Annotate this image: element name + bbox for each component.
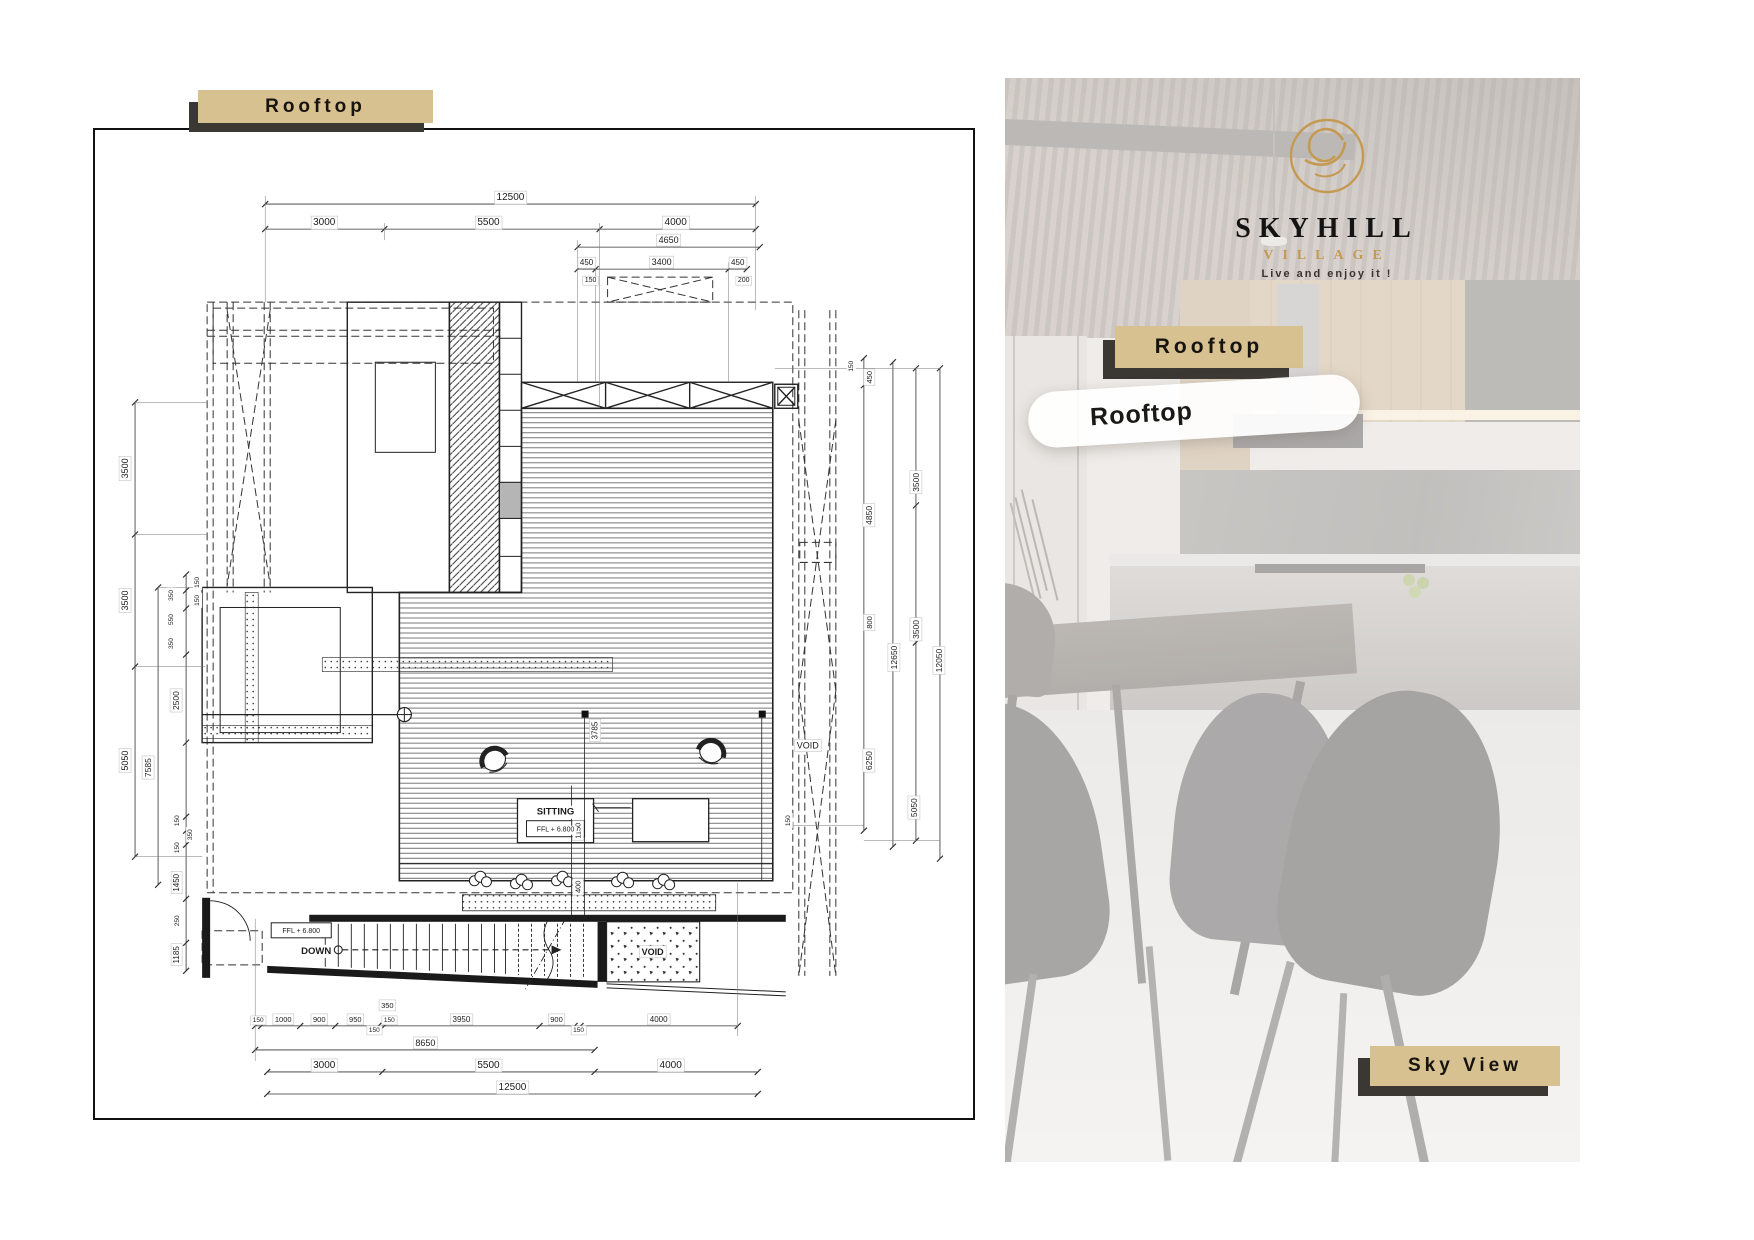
dim-label: 3000: [313, 1060, 336, 1071]
dim-label: DOWN: [301, 946, 331, 957]
dim-label: 5500: [477, 1060, 500, 1071]
dim-label: 5050: [909, 798, 919, 817]
dim-label: 200: [738, 277, 750, 284]
dim-label: 3500: [911, 473, 921, 492]
dim-label: 150: [848, 360, 855, 371]
door-swing-arc: [210, 901, 250, 941]
badge-label: Rooftop: [198, 90, 433, 123]
dim-label: 150: [785, 815, 792, 826]
dim-label: 3785: [591, 721, 600, 739]
dim-label: 12050: [934, 648, 944, 672]
dim-label: 450: [580, 258, 594, 267]
skyhill-logo: SKYHILL VILLAGE Live and enjoy it !: [1177, 112, 1477, 280]
sky-view-badge: Sky View: [1370, 1046, 1560, 1086]
dim-label: 3500: [120, 590, 130, 610]
dim-label: 5500: [477, 217, 500, 228]
dim-label: 5050: [120, 751, 130, 771]
rooftop-photo-badge: Rooftop: [1115, 326, 1303, 368]
dim-label: 250: [174, 915, 181, 926]
dim-label: 450: [731, 258, 745, 267]
rooftop-title-text: Rooftop: [265, 96, 366, 118]
dim-label: 150: [384, 1017, 395, 1024]
hatched-wall-strip: [449, 302, 499, 592]
dim-label: 3500: [911, 620, 921, 639]
dim-label: 150: [573, 1027, 584, 1034]
brand-tagline: Live and enjoy it !: [1177, 268, 1477, 280]
rooftop-photo-badge-text: Rooftop: [1155, 335, 1263, 359]
dim-label: 12650: [889, 645, 899, 669]
dim-label: 3000: [313, 217, 336, 228]
rooftop-title-badge: Rooftop: [198, 90, 433, 123]
dim-label: 900: [550, 1015, 563, 1024]
brand-subtitle: VILLAGE: [1177, 248, 1477, 264]
dim-label: 900: [313, 1015, 326, 1024]
down-arrow: [334, 945, 561, 954]
dim-label: 3400: [652, 257, 672, 267]
dim-label: 350: [381, 1001, 394, 1010]
dim-label: FFL + 6.800: [282, 928, 320, 935]
dim-label: 12500: [497, 192, 525, 203]
dim-label: 550: [168, 614, 175, 625]
dim-label: 150: [194, 595, 201, 606]
dotted-wall-band: [322, 658, 612, 672]
dim-label: 6250: [864, 751, 874, 770]
dim-label: 350: [187, 829, 194, 840]
dim-label: 150: [369, 1027, 380, 1034]
dim-label: 150: [253, 1017, 264, 1024]
badge-label: Sky View: [1370, 1046, 1560, 1086]
sky-view-badge-text: Sky View: [1408, 1055, 1522, 1077]
dim-label: 2500: [171, 691, 181, 710]
floor-plan-frame: 1250030005500400046504503400450150200350…: [93, 128, 975, 1120]
dim-label: 7585: [143, 758, 153, 777]
dim-label: 4650: [659, 235, 679, 245]
dim-label: 150: [174, 815, 181, 826]
dim-label: 4850: [864, 506, 874, 525]
dim-label: VOID: [642, 947, 665, 957]
dim-label: 150: [585, 277, 597, 284]
floor-plan-drawing: 1250030005500400046504503400450150200350…: [95, 130, 973, 1118]
dim-label: VOID: [797, 741, 820, 751]
dim-label: 450: [865, 371, 874, 384]
dim-label: 350: [168, 638, 175, 649]
dim-label: SITTING: [537, 807, 574, 818]
dim-label: 4000: [665, 217, 688, 228]
brand-name: SKYHILL: [1177, 213, 1477, 245]
dim-label: 350: [168, 590, 175, 601]
dim-label: 8650: [415, 1038, 435, 1048]
dim-label: 150: [174, 842, 181, 853]
window-band: [521, 382, 797, 408]
dim-label: 4000: [650, 1015, 668, 1024]
dim-label: 950: [349, 1015, 362, 1024]
dim-label: 1000: [275, 1015, 292, 1024]
dim-label: 4000: [660, 1060, 683, 1071]
badge-label: Rooftop: [1115, 326, 1303, 368]
dim-label: 1185: [172, 946, 181, 964]
dim-label: 800: [865, 616, 874, 629]
dim-label: 3950: [453, 1015, 471, 1024]
dim-label: 400: [574, 881, 583, 894]
brochure-page: { "left_panel": { "badge_label": "Roofto…: [0, 0, 1754, 1240]
dim-label: 3500: [120, 458, 130, 478]
dim-label: 1450: [172, 873, 181, 891]
dim-label: FFL + 6.800: [537, 827, 575, 834]
dim-label: 12500: [499, 1082, 527, 1093]
dim-label: 150: [194, 577, 201, 588]
deck-bench: [633, 799, 709, 842]
skyhill-emblem-icon: [1281, 112, 1373, 204]
rooftop-caption-text: Rooftop: [1027, 397, 1193, 436]
